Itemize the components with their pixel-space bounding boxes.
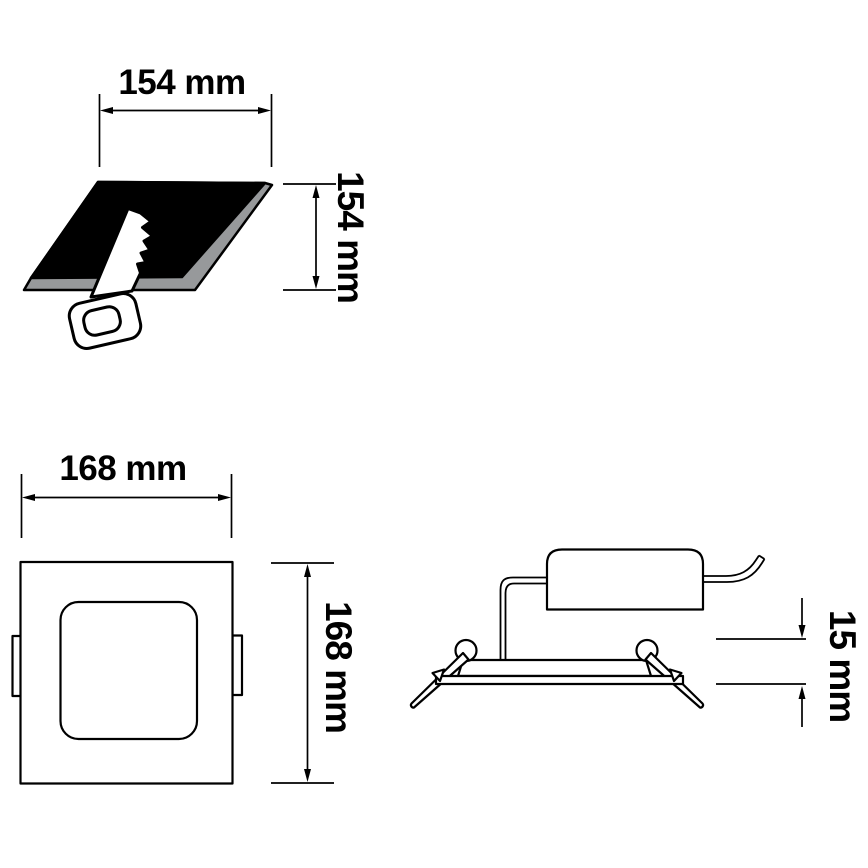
panel-side-view: 15 mm (411, 550, 863, 728)
panel-height-label: 168 mm (318, 601, 359, 733)
cutout-height-dimension: 154 mm (283, 171, 371, 303)
panel-body (458, 660, 651, 676)
arrowhead-up (313, 185, 320, 198)
technical-drawing: 154 mm 154 mm 168 mm (0, 0, 868, 868)
recess-depth-label: 15 mm (822, 610, 863, 722)
panel-inner-face (61, 602, 198, 739)
arrowhead-down (304, 769, 311, 782)
arrowhead-right (258, 107, 271, 114)
arrowhead-down (799, 625, 806, 638)
panel-width-dimension: 168 mm (22, 449, 232, 538)
panel-width-label: 168 mm (59, 449, 186, 488)
cutout-width-label: 154 mm (118, 63, 245, 102)
arrowhead-left (22, 494, 35, 501)
panel-flange (436, 676, 683, 684)
arrowhead-left (100, 107, 113, 114)
arrowhead-up (799, 686, 806, 699)
arrowhead-right (218, 494, 231, 501)
recess-depth-dimension: 15 mm (716, 598, 863, 727)
mains-cable (703, 556, 765, 583)
drawing-canvas: 154 mm 154 mm 168 mm (0, 0, 868, 868)
driver-box (547, 550, 703, 610)
connecting-wires (501, 578, 548, 660)
ceiling-cutout-diagram: 154 mm 154 mm (24, 63, 371, 351)
panel-height-dimension: 168 mm (271, 563, 359, 783)
arrowhead-down (313, 276, 320, 289)
mounting-tab-right (233, 636, 243, 696)
panel-front-view: 168 mm 168 mm (13, 449, 360, 784)
cutout-height-label: 154 mm (330, 171, 371, 303)
arrowhead-up (304, 564, 311, 577)
cutout-width-dimension: 154 mm (100, 63, 272, 167)
